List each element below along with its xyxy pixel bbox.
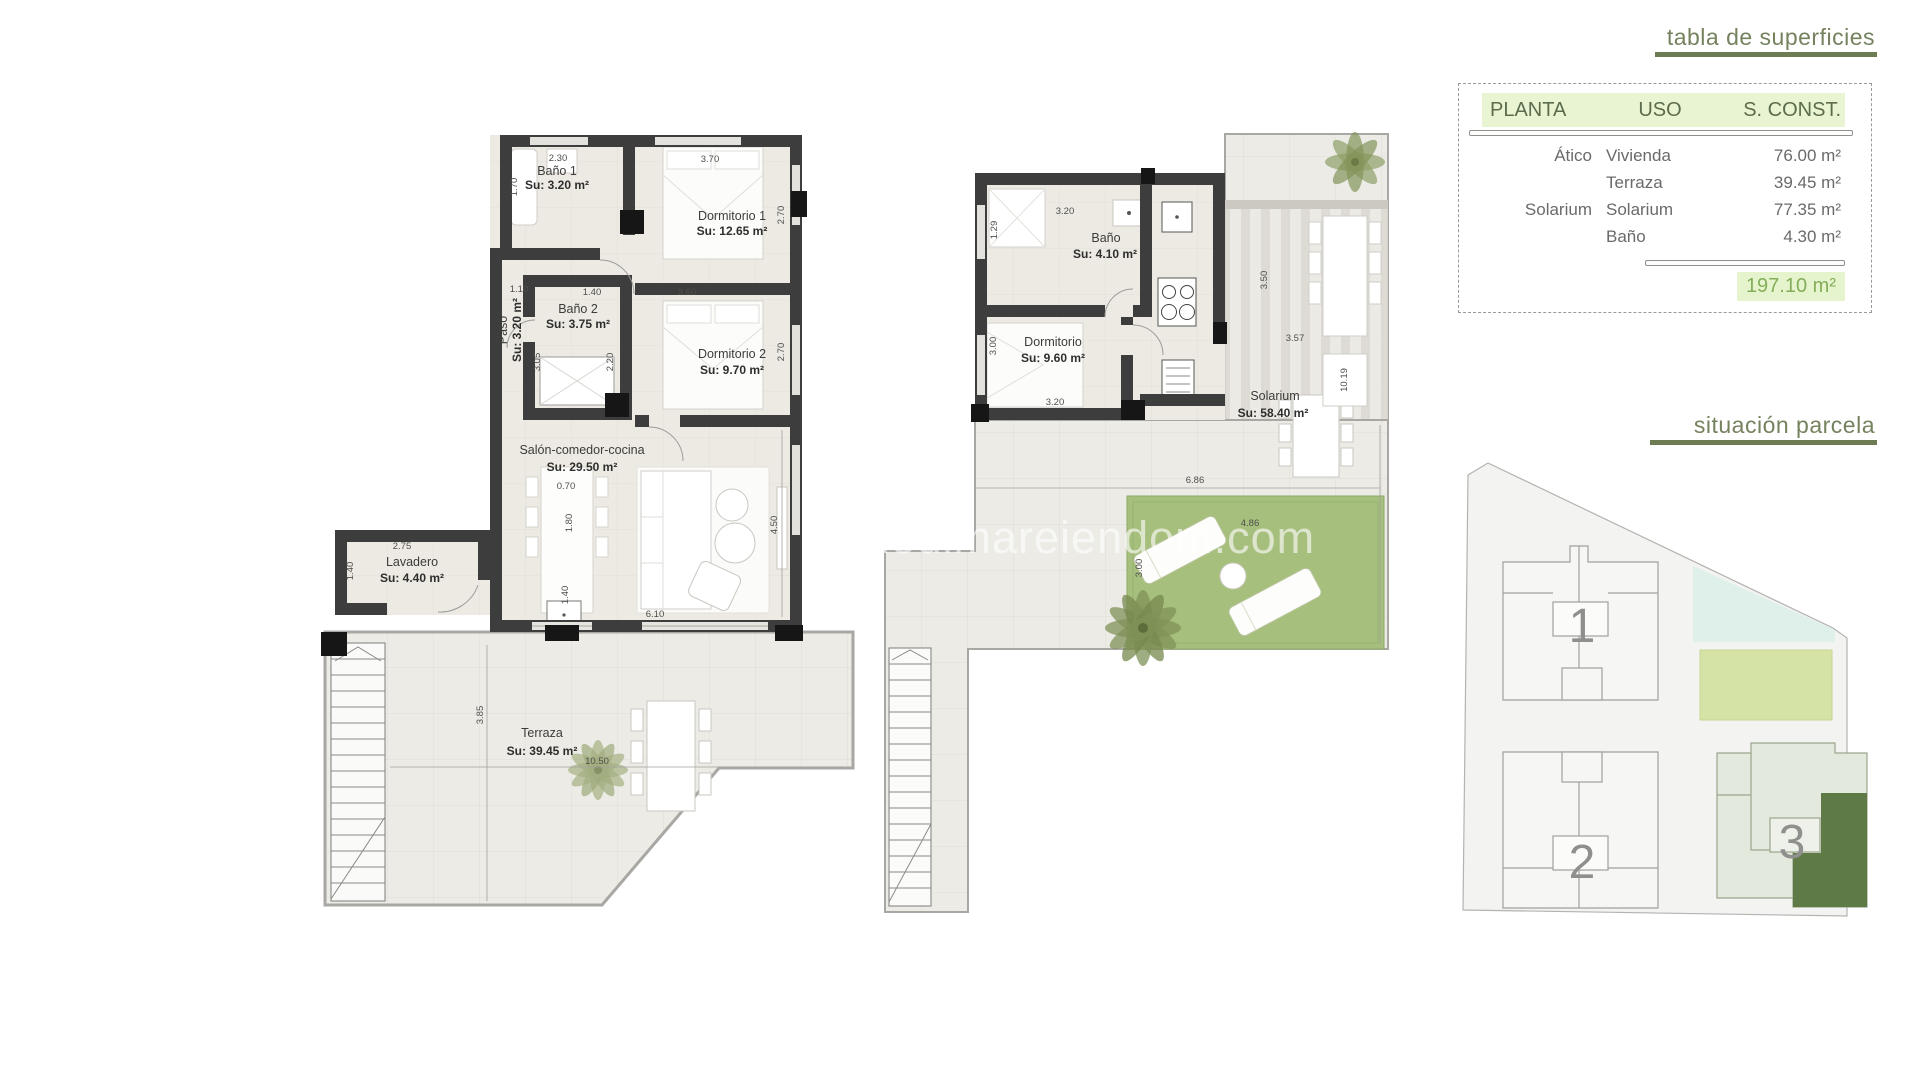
pool-area bbox=[1693, 566, 1835, 642]
dim-bano-w: 3.20 bbox=[1056, 206, 1075, 217]
label-salon: Salón-comedor-cocina bbox=[519, 443, 644, 457]
label-bano2: Baño 2 bbox=[558, 302, 598, 316]
area-salon: Su: 29.50 m² bbox=[547, 460, 618, 474]
cell-sconst: 77.35 m² bbox=[1726, 200, 1845, 220]
solarium-floor-plan: 3.20 Baño Su: 4.10 m² 1.29 Dormitorio Su… bbox=[875, 110, 1395, 930]
area-paso: Su: 3.20 m² bbox=[510, 298, 524, 362]
building-3-number: 3 bbox=[1779, 816, 1806, 869]
solarium-open-floor bbox=[885, 420, 1388, 912]
col-uso: USO bbox=[1600, 99, 1720, 122]
dim-solarium-h: 10.19 bbox=[1339, 368, 1350, 392]
cell-sconst: 39.45 m² bbox=[1726, 173, 1845, 193]
cell-uso: Baño bbox=[1606, 227, 1726, 247]
side-table bbox=[1220, 563, 1246, 589]
table-row: Ático Vivienda 76.00 m² bbox=[1482, 142, 1845, 169]
total-area-value: 197.10 m² bbox=[1737, 272, 1845, 301]
dim-island-w: 0.70 bbox=[557, 481, 576, 492]
dim-dorm1-h: 2.70 bbox=[776, 206, 787, 225]
label-terraza: Terraza bbox=[521, 726, 563, 740]
cell-planta: Ático bbox=[1482, 146, 1606, 166]
dim-paso-h: 3.05 bbox=[532, 353, 543, 372]
dim-island-h2: 1.40 bbox=[560, 586, 571, 605]
dim-dorm2-w: 3.60 bbox=[678, 287, 697, 298]
cell-planta: Solarium bbox=[1482, 200, 1606, 220]
dim-lavadero-w: 2.75 bbox=[393, 541, 412, 552]
dim-dorm-w: 3.20 bbox=[1046, 397, 1065, 408]
sofa-area bbox=[637, 467, 787, 613]
building-2-number: 2 bbox=[1569, 836, 1596, 889]
dim-dorm-h: 3.00 bbox=[988, 337, 999, 356]
cell-uso: Terraza bbox=[1606, 173, 1726, 193]
surface-table-header: PLANTA USO S. CONST. bbox=[1482, 93, 1845, 127]
col-planta: PLANTA bbox=[1482, 99, 1600, 122]
total-area: 197.10 m² bbox=[1737, 272, 1845, 301]
garden-area bbox=[1700, 650, 1832, 720]
shower-bano2 bbox=[540, 357, 614, 405]
parcel-map: 1 2 3 bbox=[1455, 450, 1875, 920]
table-row: Terraza 39.45 m² bbox=[1482, 169, 1845, 196]
area-dorm1: Su: 12.65 m² bbox=[697, 224, 768, 238]
label-lavadero: Lavadero bbox=[386, 555, 438, 569]
label-dorm: Dormitorio bbox=[1024, 335, 1082, 349]
table-row: Solarium Solarium 77.35 m² bbox=[1482, 196, 1845, 223]
cell-sconst: 76.00 m² bbox=[1726, 146, 1845, 166]
dim-terraza-h: 3.85 bbox=[475, 706, 486, 725]
dim-salon-w: 6.10 bbox=[646, 609, 665, 620]
label-paso: Paso bbox=[496, 316, 510, 345]
area-dorm2: Su: 9.70 m² bbox=[700, 363, 764, 377]
dim-pergola-h: 3.50 bbox=[1259, 271, 1270, 290]
parcel-title: situación parcela bbox=[1453, 412, 1875, 439]
staircase bbox=[889, 648, 931, 906]
dim-paso-w: 1.10 bbox=[510, 284, 529, 295]
cell-uso: Vivienda bbox=[1606, 146, 1726, 166]
building-1-number: 1 bbox=[1569, 600, 1596, 653]
table-divider bbox=[1469, 130, 1853, 136]
area-dorm: Su: 9.60 m² bbox=[1021, 351, 1085, 365]
dim-bano2-w: 1.40 bbox=[583, 287, 602, 298]
dim-dorm2-h: 2.70 bbox=[776, 343, 787, 362]
dim-salon-h: 4.50 bbox=[769, 516, 780, 535]
label-bano1: Baño 1 bbox=[537, 164, 577, 178]
label-bano: Baño bbox=[1091, 231, 1120, 245]
surface-table-title-rule bbox=[1655, 52, 1877, 57]
dim-bano-h: 1.29 bbox=[989, 221, 1000, 240]
area-bano: Su: 4.10 m² bbox=[1073, 247, 1137, 261]
total-divider bbox=[1645, 260, 1845, 266]
area-bano2: Su: 3.75 m² bbox=[546, 317, 610, 331]
dim-lawn-w: 4.86 bbox=[1241, 518, 1260, 529]
label-dorm1: Dormitorio 1 bbox=[698, 209, 766, 223]
surface-table-title: tabla de superficies bbox=[1453, 24, 1875, 51]
terraza-dining-table bbox=[631, 701, 711, 811]
floor-plan-sheet: 2.30 Baño 1 Su: 3.20 m² 1.70 3.70 Dormit… bbox=[0, 0, 1920, 1080]
dim-bano1-w: 2.30 bbox=[549, 153, 568, 164]
col-sconst: S. CONST. bbox=[1720, 99, 1845, 122]
table-row: Baño 4.30 m² bbox=[1482, 223, 1845, 250]
cell-uso: Solarium bbox=[1606, 200, 1726, 220]
atico-floor-plan: 2.30 Baño 1 Su: 3.20 m² 1.70 3.70 Dormit… bbox=[295, 115, 905, 945]
tree bbox=[1325, 132, 1385, 192]
dim-bano2-h: 2.20 bbox=[605, 353, 616, 372]
dim-bano1-h: 1.70 bbox=[509, 178, 520, 197]
area-solarium: Su: 58.40 m² bbox=[1238, 406, 1309, 420]
area-lavadero: Su: 4.40 m² bbox=[380, 571, 444, 585]
area-bano1: Su: 3.20 m² bbox=[525, 178, 589, 192]
surface-table-rows: Ático Vivienda 76.00 m² Terraza 39.45 m²… bbox=[1482, 142, 1845, 250]
area-terraza: Su: 39.45 m² bbox=[507, 744, 578, 758]
dim-terraza-w: 10.50 bbox=[585, 756, 609, 767]
dim-lawn-h: 3.00 bbox=[1134, 559, 1145, 578]
label-solarium: Solarium bbox=[1250, 389, 1299, 403]
label-dorm2: Dormitorio 2 bbox=[698, 347, 766, 361]
dim-island-h: 1.80 bbox=[564, 514, 575, 533]
surface-table: PLANTA USO S. CONST. Ático Vivienda 76.0… bbox=[1458, 83, 1872, 313]
dim-lavadero-h: 1.40 bbox=[345, 562, 356, 581]
parcel-title-rule bbox=[1650, 440, 1877, 445]
dim-pergola-w: 3.57 bbox=[1286, 333, 1305, 344]
kitchen-appliances bbox=[1158, 202, 1196, 402]
dim-dorm1-w: 3.70 bbox=[701, 154, 720, 165]
staircase bbox=[331, 643, 385, 901]
cell-sconst: 4.30 m² bbox=[1726, 227, 1845, 247]
dim-solarium-w: 6.86 bbox=[1186, 475, 1205, 486]
